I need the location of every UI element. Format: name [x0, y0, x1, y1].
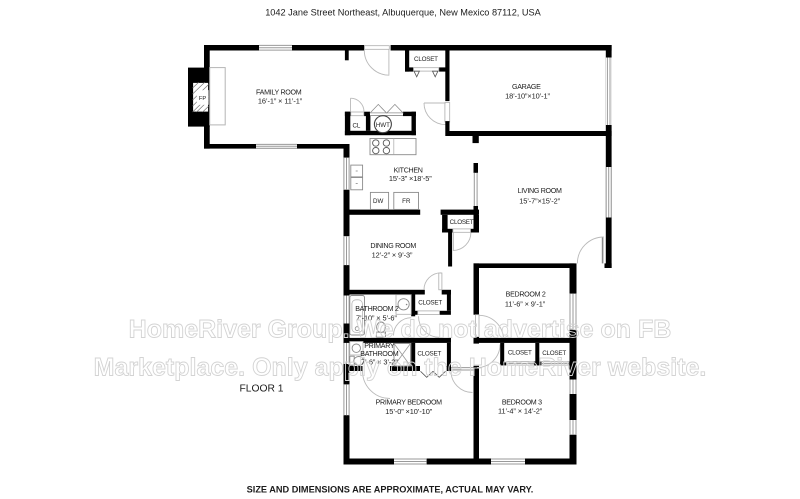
svg-text:CLOSET: CLOSET: [450, 219, 474, 226]
svg-text:DW: DW: [373, 198, 383, 205]
svg-text:11’-4” × 14’-2”: 11’-4” × 14’-2”: [498, 406, 543, 415]
svg-text:FAMILY ROOM: FAMILY ROOM: [256, 89, 302, 97]
svg-text:HWT: HWT: [376, 122, 390, 129]
svg-text:15’-3” ×18’-5”: 15’-3” ×18’-5”: [389, 174, 432, 183]
svg-text:BEDROOM 3: BEDROOM 3: [502, 398, 542, 406]
svg-text:16’-1” × 11’-1”: 16’-1” × 11’-1”: [258, 97, 303, 106]
svg-text:SIZE AND DIMENSIONS ARE APPROX: SIZE AND DIMENSIONS ARE APPROXIMATE, ACT…: [247, 484, 534, 494]
svg-text:CLOSET: CLOSET: [418, 299, 442, 306]
svg-text:BATHROOM 2: BATHROOM 2: [355, 305, 399, 313]
svg-text:BEDROOM 2: BEDROOM 2: [506, 290, 546, 298]
svg-text:15’-0” ×10’-10”: 15’-0” ×10’-10”: [385, 407, 432, 416]
svg-text:FR: FR: [402, 198, 411, 205]
svg-text:11’-6” × 9’-1”: 11’-6” × 9’-1”: [505, 299, 546, 308]
svg-text:LIVING ROOM: LIVING ROOM: [518, 187, 562, 195]
svg-text:12’-2” × 9’-3”: 12’-2” × 9’-3”: [372, 251, 413, 260]
svg-text:FLOOR 1: FLOOR 1: [239, 384, 283, 395]
svg-text:Marketplace. Only apply on the: Marketplace. Only apply on the HomeRiver…: [94, 354, 707, 382]
svg-text:1042 Jane Street Northeast, Al: 1042 Jane Street Northeast, Albuquerque,…: [265, 8, 541, 18]
svg-text:CLOSET: CLOSET: [414, 56, 438, 63]
svg-text:PRIMARY BEDROOM: PRIMARY BEDROOM: [376, 398, 443, 406]
svg-text:15’-7”×15’-2”: 15’-7”×15’-2”: [519, 196, 560, 205]
svg-text:GARAGE: GARAGE: [512, 83, 541, 91]
svg-text:DINING ROOM: DINING ROOM: [370, 242, 416, 250]
svg-text:18’-10”×10’-1”: 18’-10”×10’-1”: [505, 92, 550, 101]
svg-text:HomeRiver Group. We do not adv: HomeRiver Group. We do not advertise on …: [129, 316, 672, 344]
svg-text:FP: FP: [199, 96, 207, 102]
svg-text:CL: CL: [352, 123, 360, 130]
